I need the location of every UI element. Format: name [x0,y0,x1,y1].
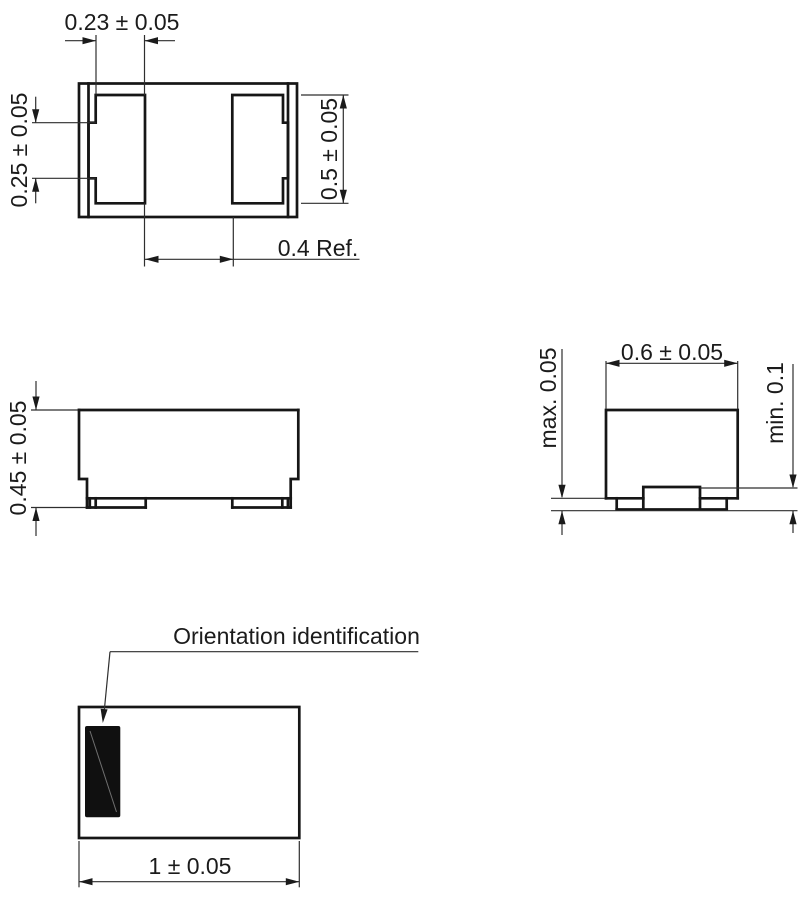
dim-label-terminal-length: 0.5 ± 0.05 [317,98,341,200]
top-view-body [79,84,297,218]
bottom-view-body [79,707,299,838]
end-view-body [606,410,738,510]
end-view-center-terminal [643,487,700,510]
side-view-body [79,410,298,508]
drawing-linework [0,0,803,900]
top-view-right-terminal-pad [232,95,288,203]
dim-label-terminal-gap: 0.4 Ref. [278,236,359,260]
side-view-arrowheads [32,397,39,522]
dim-label-standoff: max. 0.05 [536,348,560,449]
top-view-dimension-lines [32,35,360,267]
orientation-mark [85,726,120,817]
dim-label-body-height: 0.45 ± 0.05 [6,401,30,516]
end-view-dimension-lines [551,349,798,535]
dim-label-terminal-side-width: 0.25 ± 0.05 [6,93,30,208]
bottom-view-dimension-lines [79,652,418,888]
top-view-left-terminal-pad [89,95,146,203]
end-view-arrowheads [558,360,796,525]
callout-leader-arrow [101,709,108,723]
dim-label-body-width: 0.6 ± 0.05 [621,340,723,364]
top-view-body-outline [79,84,297,218]
side-view-left-edge [79,410,87,508]
dim-label-terminal-height: min. 0.1 [763,362,787,444]
orientation-callout-label: Orientation identification [173,624,420,648]
package-outline-drawing: 0.23 ± 0.05 0.25 ± 0.05 0.5 ± 0.05 0.4 R… [0,0,803,900]
dim-label-terminal-width: 0.23 ± 0.05 [65,9,180,33]
end-view-body-outline [606,410,738,498]
dim-label-body-length: 1 ± 0.05 [149,854,232,878]
side-view-right-edge [291,410,299,508]
